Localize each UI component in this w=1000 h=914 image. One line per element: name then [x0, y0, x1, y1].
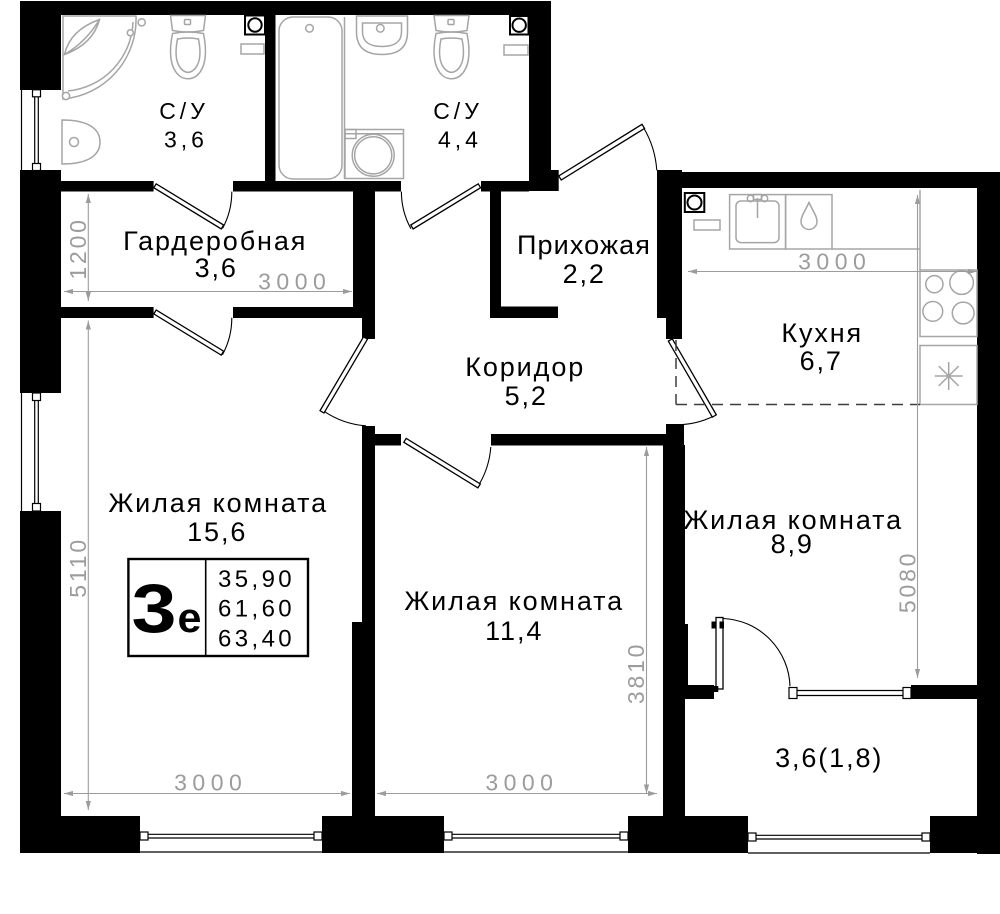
svg-text:е: е: [178, 594, 202, 641]
svg-text:35,90: 35,90: [218, 566, 295, 593]
svg-text:3,6(1,8): 3,6(1,8): [775, 743, 883, 773]
svg-text:3000: 3000: [485, 770, 558, 796]
svg-text:3000: 3000: [798, 249, 871, 275]
svg-text:3000: 3000: [258, 269, 331, 295]
svg-text:6,7: 6,7: [800, 346, 843, 376]
svg-text:3000: 3000: [174, 770, 247, 796]
svg-text:3,6: 3,6: [164, 127, 208, 153]
svg-text:63,40: 63,40: [218, 626, 295, 653]
svg-text:5110: 5110: [65, 537, 91, 598]
svg-text:Жилая комната: Жилая комната: [108, 488, 328, 518]
svg-text:5080: 5080: [895, 551, 921, 613]
svg-text:11,4: 11,4: [485, 616, 543, 646]
svg-text:Жилая комната: Жилая комната: [404, 586, 624, 616]
svg-text:4,4: 4,4: [438, 127, 482, 153]
svg-text:2,2: 2,2: [563, 259, 606, 289]
svg-text:3,6: 3,6: [195, 253, 238, 283]
svg-text:Гардеробная: Гардеробная: [123, 226, 307, 256]
svg-text:3: 3: [132, 570, 177, 647]
svg-text:Коридор: Коридор: [465, 352, 585, 382]
svg-text:С/У: С/У: [159, 98, 209, 124]
svg-text:8,9: 8,9: [771, 529, 814, 559]
svg-text:Прихожая: Прихожая: [517, 230, 651, 260]
svg-text:3810: 3810: [623, 642, 649, 704]
svg-text:С/У: С/У: [433, 98, 483, 124]
svg-text:Кухня: Кухня: [781, 318, 863, 348]
svg-text:1200: 1200: [65, 217, 91, 279]
svg-text:15,6: 15,6: [187, 517, 247, 547]
svg-text:61,60: 61,60: [218, 596, 295, 623]
svg-text:5,2: 5,2: [505, 381, 548, 411]
